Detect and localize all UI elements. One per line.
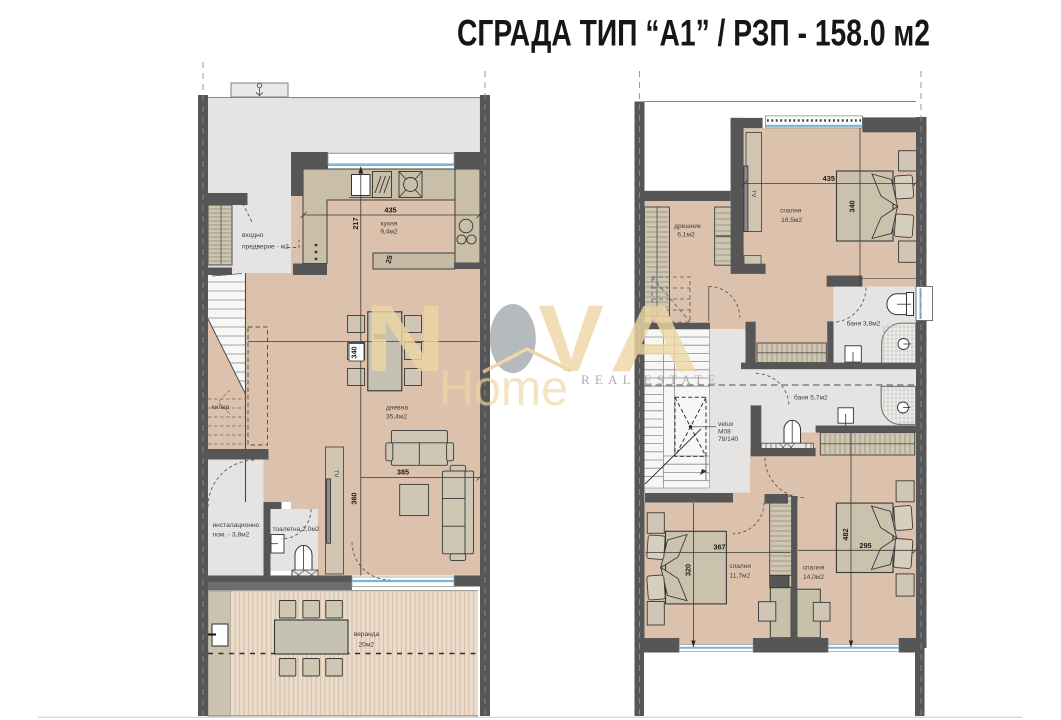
svg-text:340: 340 xyxy=(848,200,857,212)
svg-text:320: 320 xyxy=(683,564,692,576)
svg-text:20м2: 20м2 xyxy=(359,642,375,649)
svg-text:360: 360 xyxy=(350,492,359,504)
svg-text:482: 482 xyxy=(841,528,850,540)
svg-text:СГРАДА ТИП “А1” / РЗП - 158.0: СГРАДА ТИП “А1” / РЗП - 158.0 м2 xyxy=(457,12,930,54)
svg-text:435: 435 xyxy=(384,206,396,215)
svg-text:340: 340 xyxy=(350,346,359,358)
svg-text:35,4м2: 35,4м2 xyxy=(386,414,407,421)
svg-text:295: 295 xyxy=(859,541,871,550)
svg-text:367: 367 xyxy=(713,543,725,552)
svg-text:тоалетна 2,0м2: тоалетна 2,0м2 xyxy=(272,526,319,533)
svg-text:дневна: дневна xyxy=(386,405,408,412)
svg-text:6,1м2: 6,1м2 xyxy=(677,232,695,239)
svg-text:кухня: кухня xyxy=(381,220,398,227)
svg-text:инсталационно: инсталационно xyxy=(213,522,260,529)
svg-text:9,4м2: 9,4м2 xyxy=(380,229,398,236)
svg-text:TV: TV xyxy=(750,190,756,198)
svg-text:баня 5,7м2: баня 5,7м2 xyxy=(794,394,828,402)
svg-text:Home: Home xyxy=(439,360,568,416)
svg-text:веранда: веранда xyxy=(354,631,380,638)
svg-text:входно: входно xyxy=(242,232,264,239)
svg-text:REAL ESTATE: REAL ESTATE xyxy=(581,372,721,387)
svg-text:velux: velux xyxy=(718,421,734,428)
svg-text:предверие - м2: предверие - м2 xyxy=(242,244,289,251)
svg-text:баня 3,8м2: баня 3,8м2 xyxy=(847,320,881,328)
svg-text:N: N xyxy=(364,286,446,392)
svg-text:дрешник: дрешник xyxy=(674,223,701,230)
svg-text:385: 385 xyxy=(397,468,409,477)
svg-text:TV: TV xyxy=(333,470,339,478)
svg-text:435: 435 xyxy=(823,174,835,183)
svg-text:спалня: спалня xyxy=(780,208,802,215)
svg-text:М08: М08 xyxy=(718,429,731,436)
svg-text:спалня: спалня xyxy=(803,565,825,572)
svg-text:11,7м2: 11,7м2 xyxy=(730,573,751,580)
svg-text:217: 217 xyxy=(351,217,360,229)
svg-text:14,0м2: 14,0м2 xyxy=(803,574,824,581)
svg-text:18,5м2: 18,5м2 xyxy=(781,217,802,224)
svg-text:килер: килер xyxy=(212,404,230,411)
svg-text:спалня: спалня xyxy=(729,563,751,570)
svg-text:пом. - 3,8м2: пом. - 3,8м2 xyxy=(213,532,250,539)
svg-text:78/140: 78/140 xyxy=(718,436,739,443)
